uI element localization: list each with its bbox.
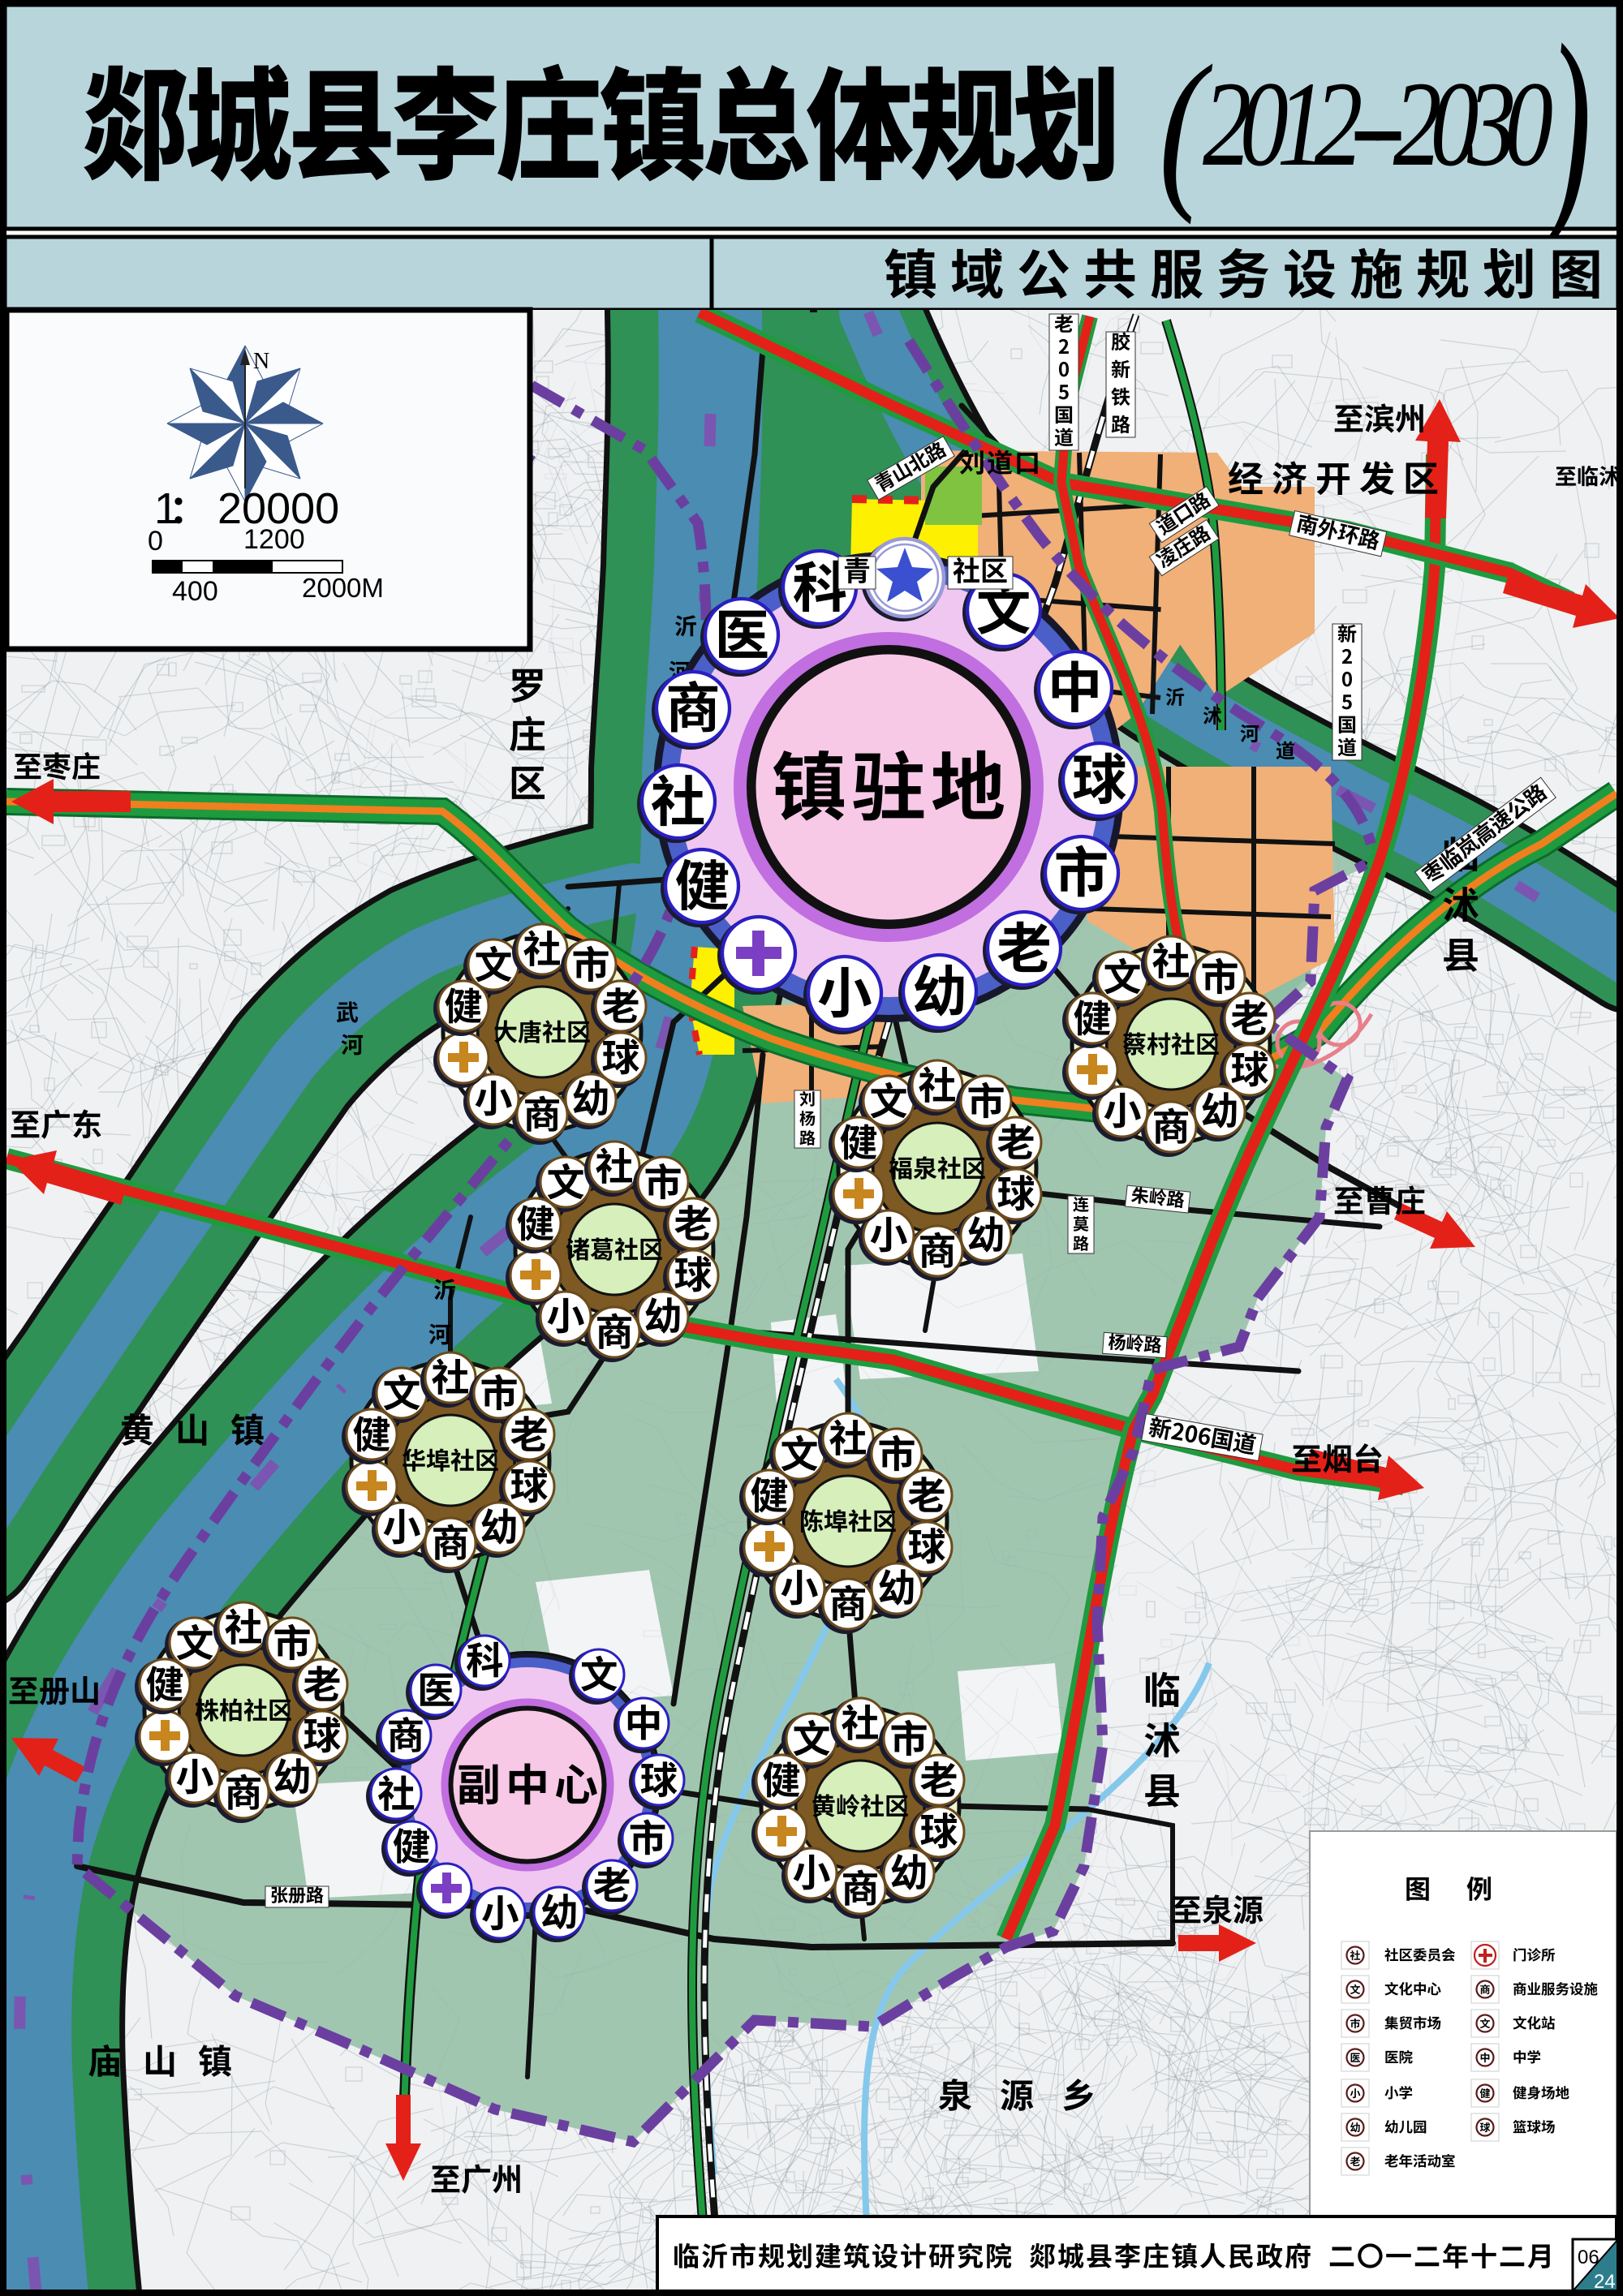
svg-text:0: 0 bbox=[148, 526, 163, 557]
svg-text:N: N bbox=[253, 349, 269, 374]
svg-text:2012--2030: 2012--2030 bbox=[1203, 57, 1553, 191]
svg-text:06: 06 bbox=[1578, 2247, 1599, 2268]
svg-text:1200: 1200 bbox=[243, 524, 305, 555]
svg-text:2000M: 2000M bbox=[302, 573, 384, 603]
svg-text:400: 400 bbox=[172, 576, 218, 607]
svg-text:): ) bbox=[1540, 0, 1592, 255]
svg-text:24: 24 bbox=[1594, 2271, 1616, 2293]
